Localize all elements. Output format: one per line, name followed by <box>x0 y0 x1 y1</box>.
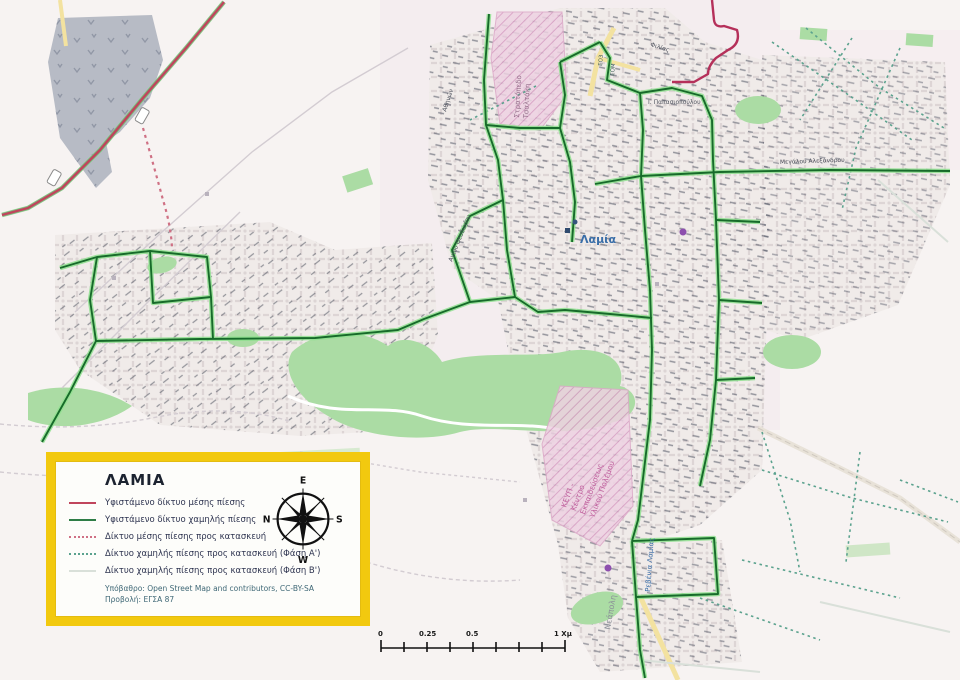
city-marker-icon <box>565 228 570 233</box>
legend-item-label: Υφιστάμενο δίκτυο μέσης πίεσης <box>105 498 245 508</box>
scale-bar: 0 0.25 0.5 1 Χμ <box>374 628 578 660</box>
street-label: Ι. Παπασιοπούλου <box>648 99 701 106</box>
compass-right-label: S <box>336 514 343 525</box>
legend-item-label: Δίκτυο μέσης πίεσης προς κατασκευή <box>105 532 266 542</box>
legend-swatch-low-planned-a <box>69 553 96 555</box>
road-ref-label: ΕΟΜ <box>610 63 617 76</box>
legend-note-projection: Προβολή: ΕΓΣΑ 87 <box>105 595 349 606</box>
legend-swatch-medium-planned <box>69 536 96 538</box>
compass-top-label: E <box>300 475 306 486</box>
scale-label-05: 0.5 <box>466 630 479 638</box>
legend-item-label: Υφιστάμενο δίκτυο χαμηλής πίεσης <box>105 515 256 525</box>
scale-label-0: 0 <box>378 630 383 638</box>
legend-swatch-medium-existing <box>69 502 96 504</box>
scale-label-1km: 1 Χμ <box>554 630 572 638</box>
camp-area-keyp <box>542 386 633 546</box>
scale-label-025: 0.25 <box>419 630 436 638</box>
city-marker-icon <box>573 220 578 225</box>
legend-note-source: Υπόβαθρο: Open Street Map and contributo… <box>105 584 349 595</box>
poi-dot-icon <box>605 565 612 572</box>
compass-left-label: N <box>263 514 271 525</box>
poi-dot-icon <box>680 229 687 236</box>
legend-box: ΛΑΜΙΑ Υφιστάμενο δίκτυο μέσης πίεσης Υφι… <box>46 452 370 626</box>
compass-bottom-label: W <box>298 555 308 566</box>
city-label: Λαμία <box>580 233 616 246</box>
legend-notes: Υπόβαθρο: Open Street Map and contributo… <box>105 584 349 606</box>
legend-swatch-low-planned-b <box>69 570 96 572</box>
road-ref-label: ΕΟ3 <box>598 54 605 66</box>
map-screenshot: Λαμία Στρατόπεδο Τσαλτάκη ΚΕΥΠ - Κέντρο … <box>0 0 960 680</box>
legend-swatch-low-existing <box>69 519 96 521</box>
compass-rose: E W N S <box>259 467 347 571</box>
